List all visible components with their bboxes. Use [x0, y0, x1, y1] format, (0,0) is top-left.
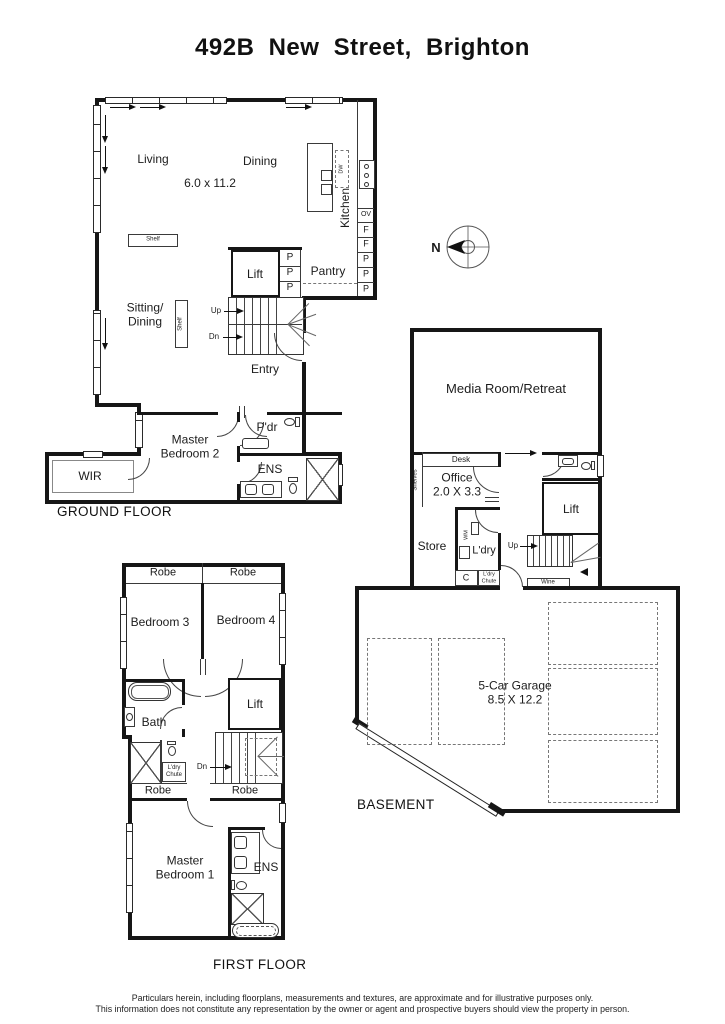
basin: [234, 856, 247, 869]
bathtub-inner: [236, 926, 276, 936]
room-dims-label: 6.0 x 11.2: [184, 176, 236, 190]
appliance-label: P: [363, 254, 369, 265]
wall: [237, 412, 240, 422]
dishwasher-label: DW: [339, 164, 346, 173]
pantry-cell-label: P: [287, 267, 294, 279]
wall: [122, 563, 285, 567]
laundry-chute-label: L'dry Chute: [166, 765, 182, 779]
robe-divider: [202, 563, 203, 583]
car-space: [367, 638, 432, 745]
left-arrow-icon: [580, 568, 588, 576]
burner-icon: [364, 182, 369, 187]
shower: [306, 458, 339, 501]
shelf-label: Shelf: [177, 317, 184, 331]
cupboard-label: C: [463, 573, 470, 584]
basement-plan: Media Room/Retreat Lift Desk Shelves Off…: [355, 325, 690, 820]
wall: [182, 679, 185, 705]
media-room-label: Media Room/Retreat: [446, 381, 566, 397]
garage-label: 5-Car Garage 8.5 X 12.2: [478, 679, 551, 708]
ensuite-label: ENS: [254, 860, 279, 874]
wm-label: WM: [464, 530, 471, 540]
window: [126, 823, 133, 913]
door-arc: [187, 801, 213, 827]
up-label: Up: [508, 541, 518, 551]
wall: [137, 412, 218, 415]
robe-label: Robe: [145, 784, 171, 797]
robe-label: Robe: [232, 784, 258, 797]
flow-arrow-icon: [505, 453, 531, 454]
toilet-bowl: [236, 881, 247, 890]
wall: [542, 478, 600, 481]
basin: [562, 458, 574, 465]
powder-room-label: P'dr: [257, 420, 278, 434]
door-arc: [217, 415, 239, 437]
burner-icon: [364, 164, 369, 169]
door-jamb: [485, 497, 499, 498]
north-label: N: [431, 240, 440, 256]
slide-arrow-icon: [105, 115, 106, 137]
ensuite-label: ENS: [258, 462, 283, 476]
compass-icon: N: [428, 222, 504, 274]
sitting-dining-label: Sitting/ Dining: [127, 301, 164, 330]
shelves-line: [422, 452, 423, 507]
shelves-label: Shelves: [412, 469, 419, 490]
burner-icon: [364, 173, 369, 178]
door-jamb: [485, 501, 499, 502]
door-arc: [128, 458, 150, 480]
appliance-label: P: [363, 269, 369, 280]
sink: [321, 170, 332, 181]
staircase: [527, 535, 573, 567]
living-label: Living: [137, 152, 168, 166]
basin: [242, 438, 269, 449]
slide-arrow-icon: [105, 146, 106, 168]
window: [93, 310, 101, 395]
wall: [182, 729, 185, 737]
toilet-tank: [167, 741, 176, 745]
desk-label: Desk: [452, 455, 470, 465]
down-arrow-icon: [223, 337, 237, 338]
kitchen-label: Kitchen: [338, 188, 352, 228]
wall: [302, 296, 377, 300]
master-bedroom2-label: Master Bedroom 2: [161, 433, 220, 462]
basin: [234, 836, 247, 849]
up-arrow-icon: [520, 546, 532, 547]
appliance-label: OV: [361, 211, 371, 219]
pantry-dash-line: [303, 283, 357, 284]
disclaimer-line2: This information does not constitute any…: [0, 1004, 725, 1015]
lift-label: Lift: [563, 502, 579, 516]
appliance-label: F: [363, 239, 369, 250]
window: [83, 451, 103, 458]
laundry-tub: [459, 546, 470, 559]
toilet-tank: [591, 461, 595, 470]
shelf-label: Shelf: [146, 236, 160, 243]
disclaimer-line1: Particulars herein, including floorplans…: [0, 993, 725, 1004]
window: [105, 97, 227, 104]
dining-label: Dining: [243, 154, 277, 168]
bath-label: Bath: [142, 715, 167, 729]
slide-arrow-icon: [286, 107, 306, 108]
wall: [228, 827, 265, 830]
wall: [201, 583, 204, 659]
toilet-tank: [231, 880, 235, 890]
slide-arrow-icon: [105, 318, 106, 344]
basin: [245, 484, 257, 495]
ground-floor-caption: GROUND FLOOR: [57, 504, 172, 519]
wall: [455, 586, 500, 590]
wall: [676, 586, 680, 813]
first-floor-caption: FIRST FLOOR: [213, 957, 306, 972]
door-arc: [274, 333, 302, 361]
wall: [410, 328, 414, 590]
window: [285, 97, 343, 104]
slide-arrow-icon: [140, 107, 160, 108]
up-label: Up: [211, 306, 221, 316]
robe-label: Robe: [150, 566, 176, 579]
entry-label: Entry: [251, 362, 279, 376]
first-floor-plan: Robe Robe Bedroom 3 Bedroom 4 Bath Lift …: [118, 555, 328, 980]
wall: [500, 809, 680, 813]
washing-machine: [471, 522, 479, 535]
pantry-cell-label: P: [287, 282, 294, 294]
bedroom4-label: Bedroom 4: [217, 613, 276, 627]
wall: [237, 446, 240, 453]
door-arc: [501, 565, 523, 587]
sink: [321, 184, 332, 195]
shower: [231, 893, 264, 925]
disclaimer: Particulars herein, including floorplans…: [0, 993, 725, 1016]
basin: [262, 484, 274, 495]
basin: [126, 713, 133, 721]
bedroom3-label: Bedroom 3: [131, 615, 190, 629]
window: [597, 455, 604, 477]
wall: [302, 362, 306, 456]
wall: [210, 798, 281, 801]
cell-line: [357, 208, 374, 209]
car-space: [548, 602, 658, 665]
page-title: 492B New Street, Brighton: [0, 34, 725, 62]
bathtub-inner: [131, 685, 169, 699]
stair-fan-line: [258, 756, 284, 757]
window: [135, 412, 143, 448]
cell-line: [357, 222, 374, 223]
wall: [355, 586, 455, 590]
master-bedroom1-label: Master Bedroom 1: [156, 854, 215, 883]
wir-label: WIR: [76, 469, 103, 483]
wall: [45, 452, 49, 504]
appliance-label: P: [363, 284, 369, 295]
ground-floor-plan: OV F F P P P DW Kitchen Lift P P P Pantr…: [40, 90, 385, 522]
robe-label: Robe: [230, 566, 256, 579]
compass-rose-icon: [444, 223, 492, 271]
wall: [267, 412, 342, 415]
toilet-bowl: [284, 418, 295, 426]
car-space: [548, 668, 658, 735]
window: [93, 105, 101, 233]
shower: [130, 742, 162, 784]
pantry-cell-label: P: [287, 252, 294, 264]
toilet-bowl: [289, 483, 297, 494]
down-label: Dn: [197, 762, 207, 772]
slide-arrow-icon: [110, 107, 130, 108]
laundry-label: L'dry: [472, 544, 496, 557]
wall: [410, 328, 602, 332]
down-arrow-icon: [210, 767, 226, 768]
floorplan-page: { "title": "492B New Street, Brighton", …: [0, 0, 725, 1024]
wall: [498, 452, 501, 467]
up-arrow-icon: [224, 311, 238, 312]
lift-label: Lift: [247, 267, 263, 281]
store-label: Store: [418, 539, 447, 553]
door-arc: [262, 830, 281, 849]
toilet-tank: [295, 417, 300, 427]
cupboard-line: [300, 250, 301, 297]
down-label: Dn: [209, 332, 219, 342]
basement-caption: BASEMENT: [357, 797, 434, 812]
window: [120, 597, 127, 669]
wall: [355, 586, 359, 722]
toilet-bowl: [581, 462, 591, 470]
appliance-label: F: [363, 225, 369, 236]
pantry-label: Pantry: [311, 264, 346, 278]
window: [279, 593, 286, 665]
car-space: [548, 740, 658, 803]
toilet-tank: [288, 477, 298, 482]
wall: [523, 586, 680, 590]
laundry-chute-label: L'dry Chute: [482, 571, 497, 584]
wall: [237, 453, 302, 456]
wall: [95, 403, 141, 407]
wall: [130, 798, 187, 801]
toilet-bowl: [168, 746, 176, 756]
window: [279, 803, 286, 823]
lift-label: Lift: [247, 697, 263, 711]
wall: [302, 452, 342, 456]
